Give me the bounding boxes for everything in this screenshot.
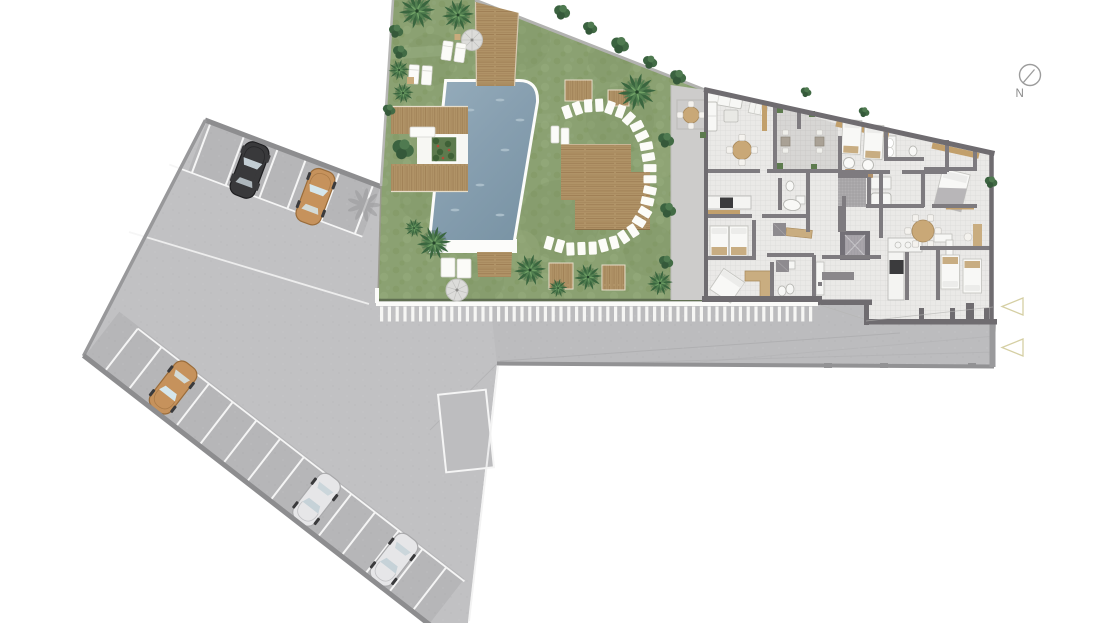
svg-text:N: N: [1016, 88, 1024, 100]
